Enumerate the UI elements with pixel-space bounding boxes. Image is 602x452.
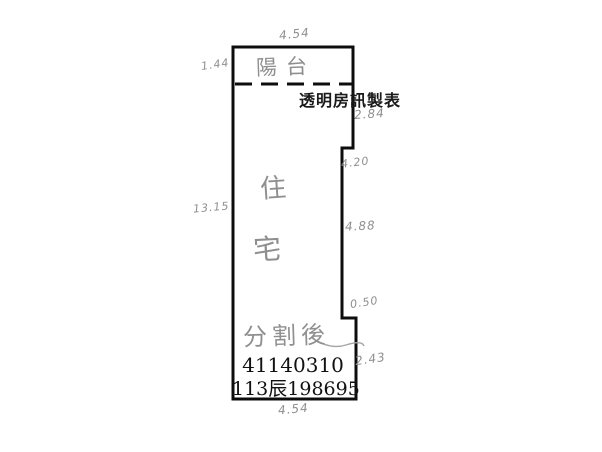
- case-number: 113辰198695: [232, 374, 354, 401]
- scanned-floorplan-page: 透明房訊製表 41140310 113辰198695 陽台 住 宅 分割後 4.…: [0, 0, 602, 452]
- dimension-right-upper: 2.84: [354, 106, 386, 122]
- room-label-char-2: 宅: [252, 227, 283, 268]
- room-label-char-1: 住: [259, 167, 289, 206]
- balcony-label: 陽台: [255, 50, 316, 82]
- division-note: 分割後: [242, 314, 330, 352]
- dimension-right-middle: 4.88: [345, 218, 376, 234]
- dimension-bottom: 4.54: [277, 401, 309, 418]
- watermark-text: 透明房訊製表: [299, 87, 401, 111]
